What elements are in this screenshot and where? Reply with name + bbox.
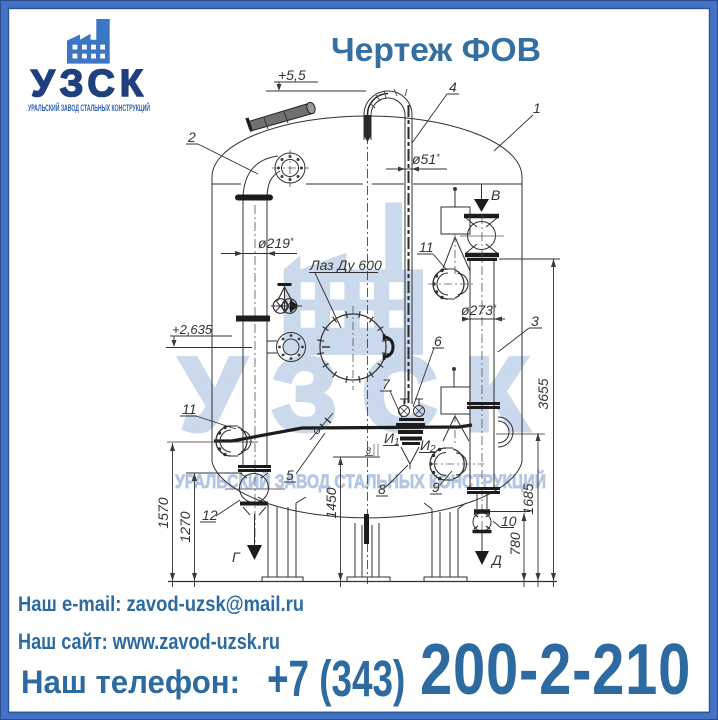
svg-text:2: 2 [187, 129, 196, 145]
svg-text:1450: 1450 [323, 487, 339, 518]
svg-text:ø51*: ø51* [412, 151, 440, 167]
svg-text:Лаз Ду 600: Лаз Ду 600 [309, 257, 382, 273]
svg-text:Наш телефон:: Наш телефон: [21, 664, 240, 700]
svg-text:1570: 1570 [155, 497, 171, 528]
svg-text:ø219*: ø219* [258, 235, 294, 251]
svg-text:1270: 1270 [177, 511, 193, 542]
svg-text:8: 8 [378, 481, 386, 497]
svg-text:В: В [491, 187, 500, 203]
svg-text:11: 11 [419, 239, 434, 255]
svg-text:7: 7 [382, 376, 391, 392]
svg-text:+5,5: +5,5 [278, 67, 306, 83]
svg-text:9: 9 [432, 479, 440, 495]
svg-text:4: 4 [449, 79, 457, 95]
svg-text:+2,635: +2,635 [172, 322, 213, 337]
svg-text:3655: 3655 [535, 378, 551, 409]
svg-text:Чертеж ФОВ: Чертеж ФОВ [331, 31, 541, 68]
svg-text:5: 5 [286, 467, 294, 483]
svg-text:Д: Д [490, 552, 502, 568]
svg-text:8: 8 [366, 446, 371, 456]
svg-text:3: 3 [531, 313, 539, 329]
svg-text:780: 780 [507, 532, 523, 556]
svg-text:Наш e-mail: zavod-uzsk@mail.ru: Наш e-mail: zavod-uzsk@mail.ru [18, 593, 304, 616]
svg-text:ø273*: ø273* [461, 302, 497, 318]
svg-text:УЗСК: УЗСК [180, 337, 546, 453]
svg-text:1: 1 [533, 100, 541, 116]
svg-text:Наш сайт: www.zavod-uzsk.ru: Наш сайт: www.zavod-uzsk.ru [18, 629, 280, 654]
svg-text:12: 12 [202, 507, 218, 523]
svg-text:1685: 1685 [520, 483, 536, 514]
svg-text:6: 6 [434, 333, 442, 349]
svg-text:УЗСК: УЗСК [31, 63, 146, 105]
svg-text:11: 11 [182, 401, 197, 417]
svg-text:200-2-210: 200-2-210 [420, 629, 691, 710]
svg-text:УРАЛЬСКИЙ ЗАВОД СТАЛЬНЫХ КОНСТ: УРАЛЬСКИЙ ЗАВОД СТАЛЬНЫХ КОНСТРУКЦИЙ [28, 102, 150, 113]
svg-text:10: 10 [501, 513, 517, 529]
svg-text:+7 (343): +7 (343) [267, 651, 405, 707]
